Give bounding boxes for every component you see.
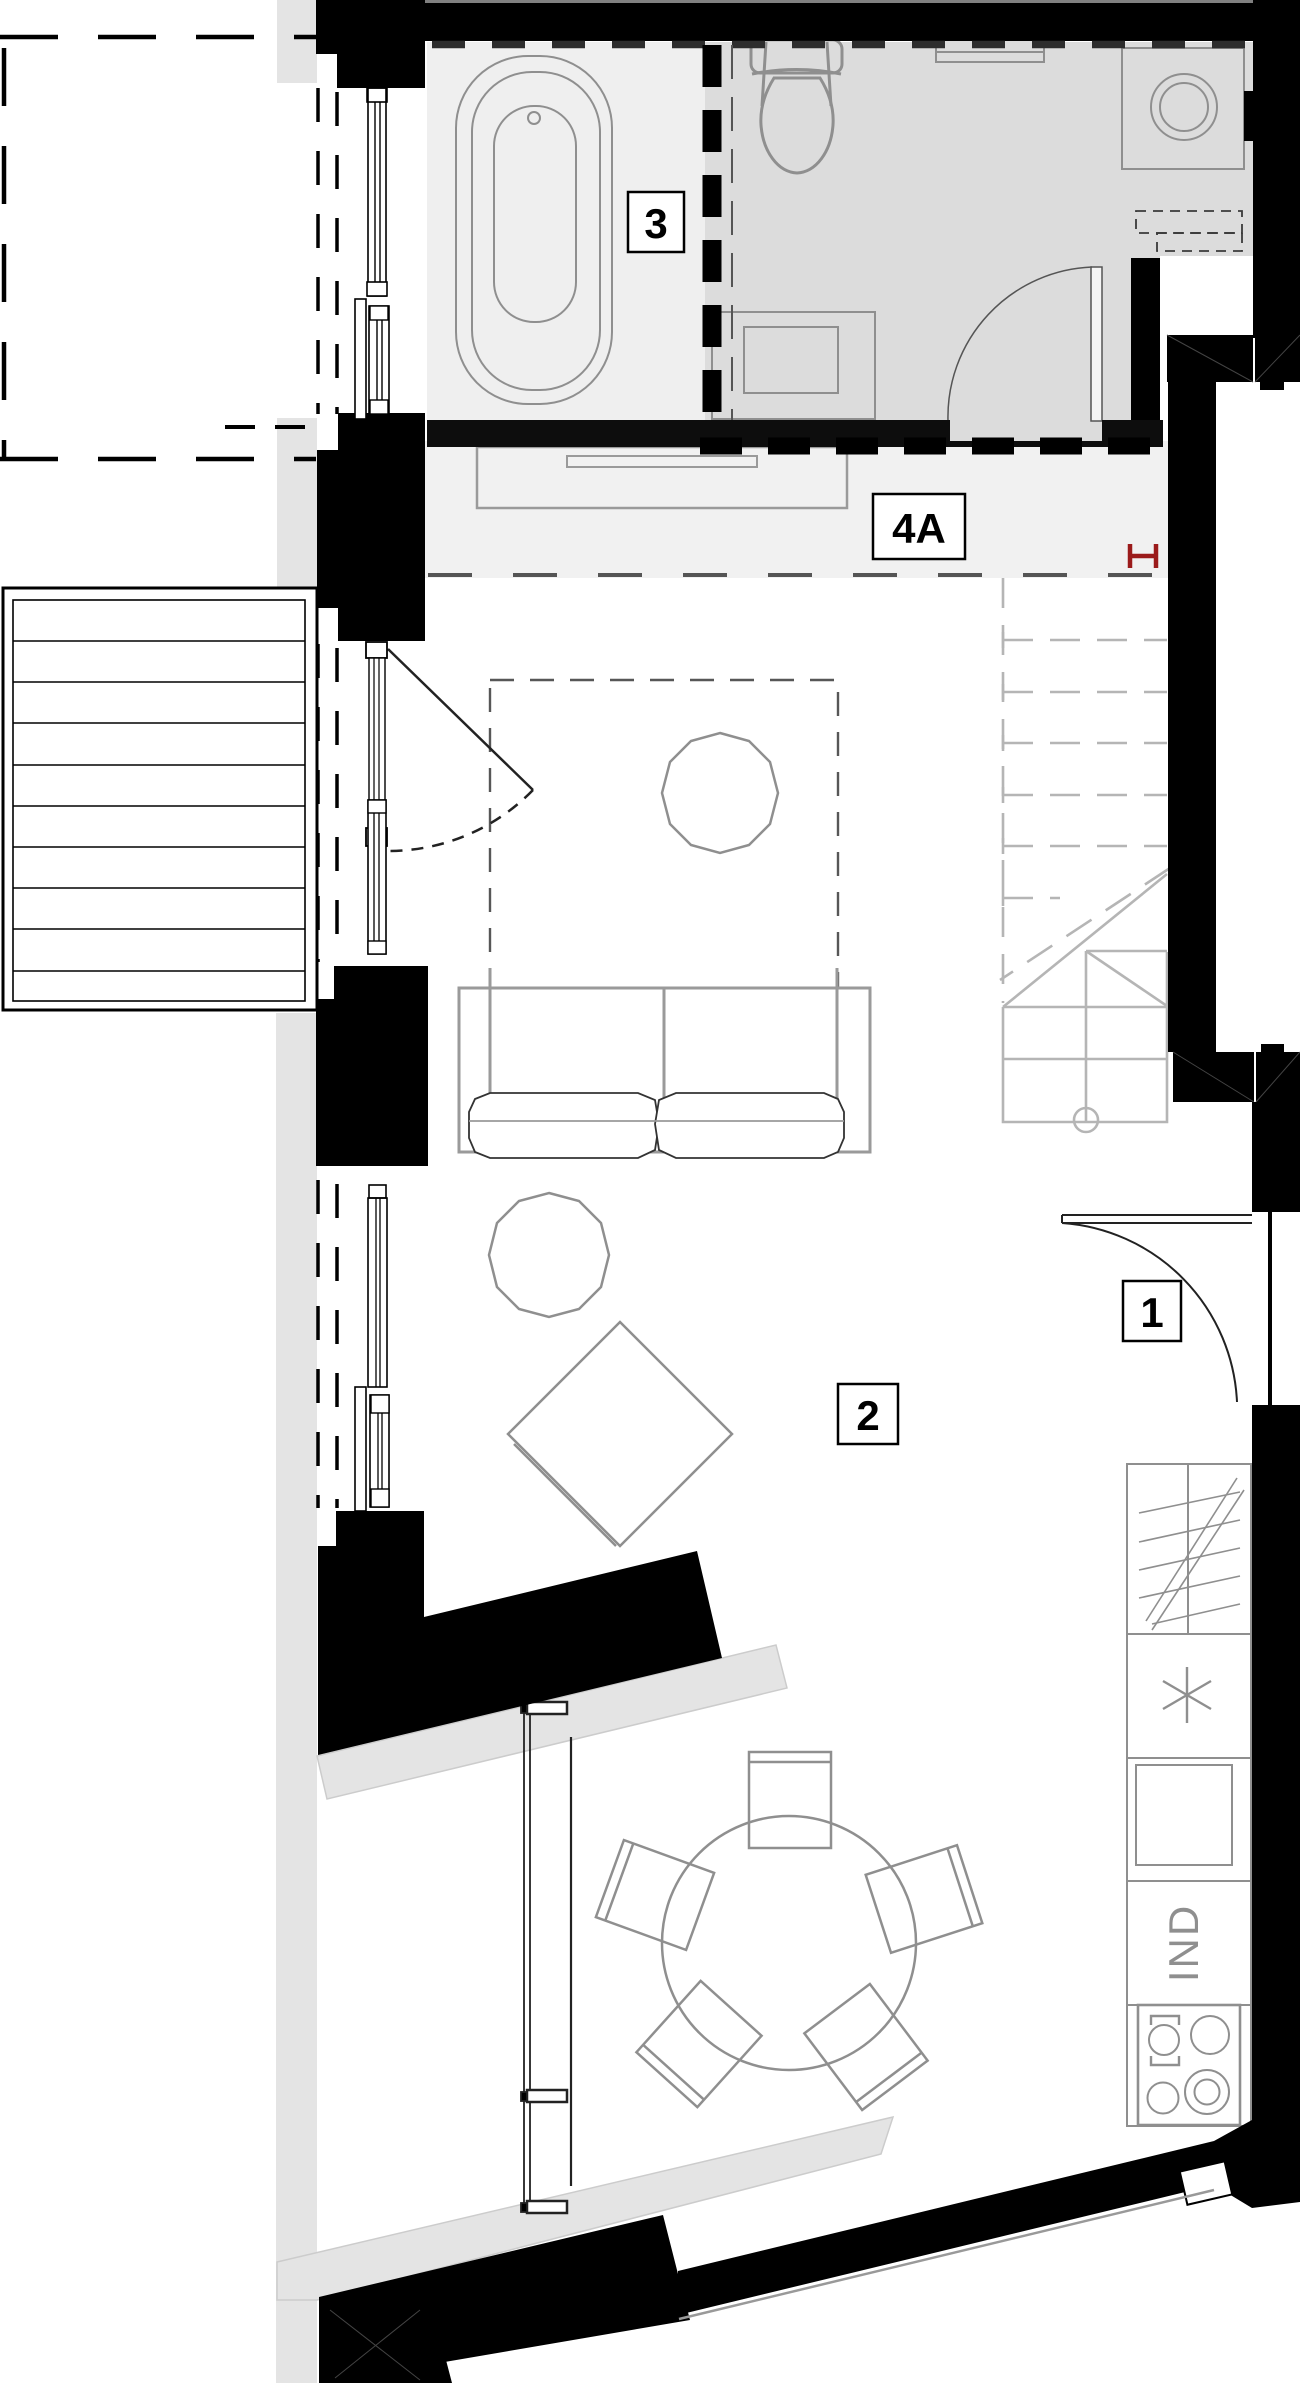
svg-text:1: 1 bbox=[1140, 1289, 1163, 1336]
svg-text:2: 2 bbox=[856, 1392, 879, 1439]
svg-text:3: 3 bbox=[644, 200, 667, 247]
svg-text:IND: IND bbox=[1160, 1904, 1207, 1982]
svg-text:4A: 4A bbox=[892, 505, 946, 552]
